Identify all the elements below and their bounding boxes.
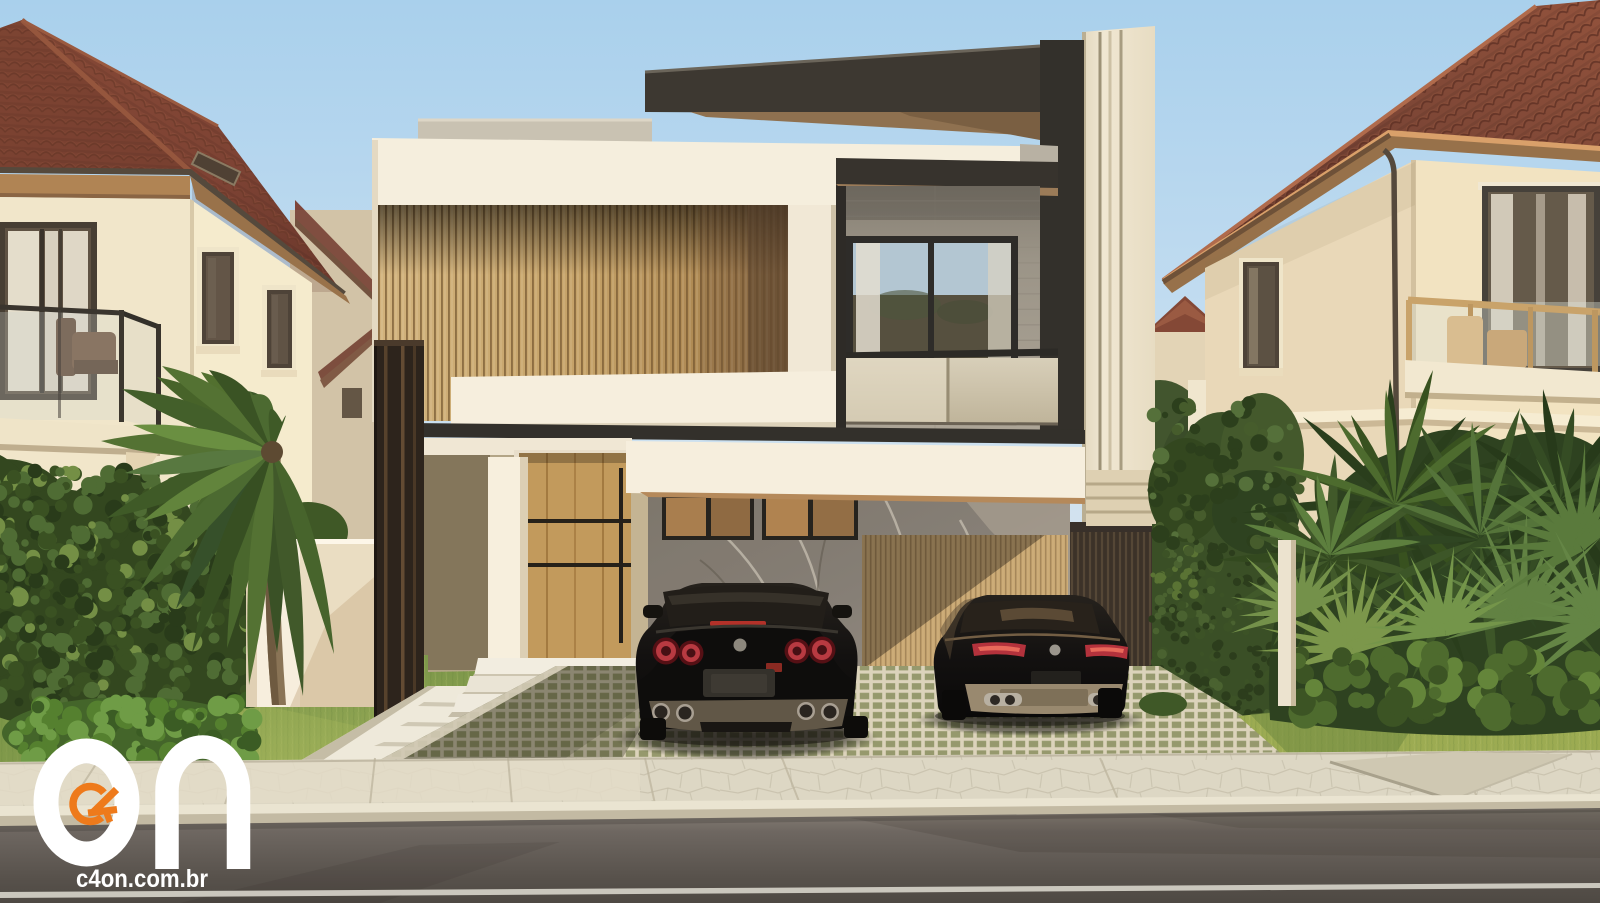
svg-text:c4on.com.br: c4on.com.br <box>76 865 208 893</box>
